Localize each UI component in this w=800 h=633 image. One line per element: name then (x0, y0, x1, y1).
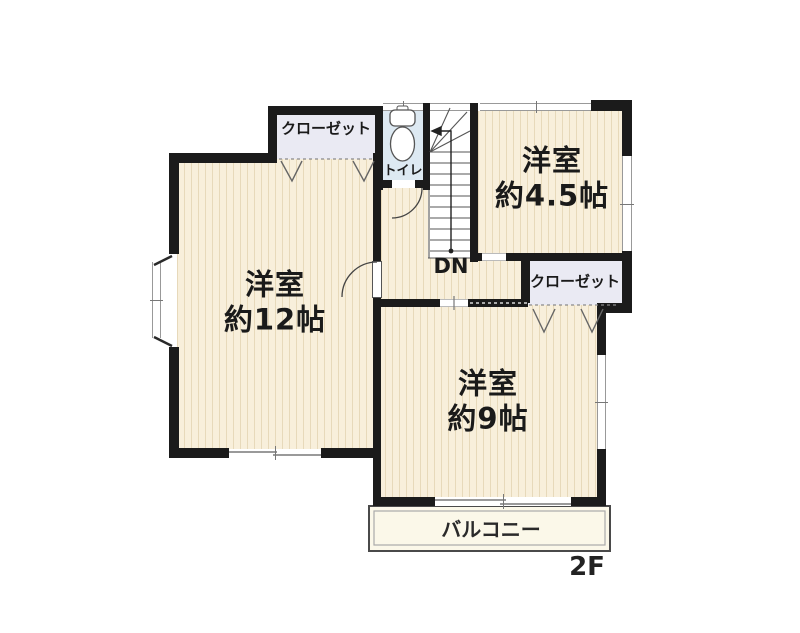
room-45-label: 洋室 約4.5帖 (495, 144, 609, 215)
wall-segment (521, 253, 632, 261)
closet-top-label: クローゼット (281, 118, 371, 139)
wall-segment (373, 153, 381, 263)
closet-right-label: クローゼット (530, 271, 620, 292)
wall-segment (373, 497, 435, 506)
room-name: 洋室 (495, 144, 609, 179)
wall-segment (521, 253, 530, 303)
stairwell-window (430, 103, 470, 111)
room-45-door-opening (482, 253, 506, 261)
wall-segment (470, 253, 482, 261)
toilet-label: トイレ (383, 160, 422, 179)
window-tick (620, 204, 634, 205)
wall-segment (169, 153, 276, 163)
window-tick (595, 402, 608, 403)
balcony-sliding-door (435, 497, 571, 506)
toilet-window (383, 103, 423, 111)
room-name: 洋室 (224, 268, 326, 303)
floor-number-label: 2F (569, 552, 605, 582)
wall-segment (571, 497, 606, 506)
window-tick (403, 101, 404, 113)
wall-segment (321, 448, 381, 458)
wall-segment (169, 153, 179, 254)
wall-segment (415, 180, 430, 188)
wall-segment (622, 100, 632, 156)
room-size: 約9帖 (447, 402, 528, 437)
window-tick (150, 300, 163, 301)
room-9-right-window (597, 355, 606, 449)
window-tick (536, 101, 537, 113)
wall-segment (268, 106, 383, 115)
wall-segment (423, 103, 430, 190)
wall-segment (468, 299, 528, 307)
room-45-top-window (480, 103, 591, 111)
room-12-bottom-window (229, 449, 321, 457)
wall-segment (378, 299, 440, 307)
room-9-door-opening (440, 299, 468, 307)
bay-window (152, 262, 161, 338)
stairs-floor (428, 111, 470, 258)
wall-segment (470, 103, 478, 262)
room-size: 約12帖 (224, 303, 326, 338)
room-12-label: 洋室 約12帖 (224, 268, 326, 339)
stairs-dn-label: DN (433, 254, 468, 278)
room-45-right-window (622, 156, 632, 251)
wall-segment (169, 347, 179, 458)
room-12-door-leaf (372, 261, 382, 298)
room-size: 約4.5帖 (495, 179, 609, 214)
balcony-label: バルコニー (441, 514, 541, 543)
wall-segment (169, 448, 229, 458)
floor-plan-2f: 洋室 約12帖 洋室 約4.5帖 洋室 約9帖 クローゼット クローゼット トイ… (0, 0, 800, 633)
toilet-door-opening (392, 180, 415, 188)
wall-segment (597, 303, 606, 355)
room-name: 洋室 (447, 367, 528, 402)
room-9-label: 洋室 約9帖 (447, 367, 528, 438)
wall-segment (373, 297, 381, 506)
